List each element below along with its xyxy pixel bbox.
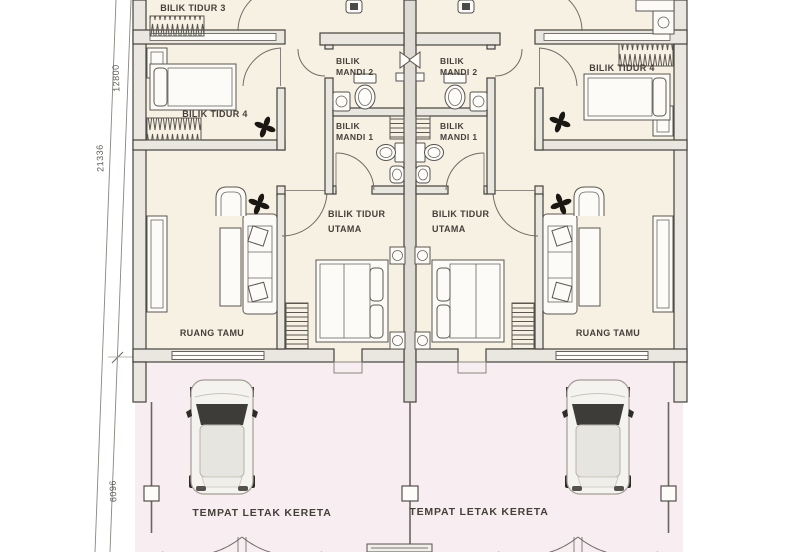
label-master-right-2: UTAMA [432, 224, 466, 234]
floor-plan-canvas: 12800 21336 6096 [0, 0, 800, 552]
wardrobe-icon [147, 118, 201, 140]
label-bath1-right-1: BILIK [440, 121, 464, 131]
bedroom3-nightstand [653, 11, 674, 34]
label-bath2-right-2: MANDI 2 [440, 67, 477, 77]
label-bath1-right-2: MANDI 1 [440, 132, 477, 142]
dimension-porch-depth: 6096 [108, 480, 119, 502]
toilet-seat-icon [350, 3, 358, 10]
master-pillow-1 [370, 268, 383, 301]
label-bedroom3-left: BILIK TIDUR 3 [160, 3, 226, 13]
stairs [286, 303, 308, 349]
sofa-pillow-2 [248, 282, 268, 302]
label-living-left: RUANG TAMU [180, 328, 244, 338]
label-bath2-left-1: BILIK [336, 56, 360, 66]
bath-bottom-wall-b [372, 186, 404, 194]
label-bedroom4-right: BILIK TIDUR 4 [589, 63, 655, 73]
label-living-right: RUANG TAMU [576, 328, 640, 338]
dimension-house-depth: 12800 [111, 64, 122, 92]
bath-left-wall [325, 78, 333, 194]
label-bath2-left-2: MANDI 2 [336, 67, 373, 77]
porch-wall-stub [133, 362, 146, 402]
label-carporch-left: TEMPAT LETAK KERETA [192, 507, 331, 519]
bath-top-wall [320, 33, 404, 45]
dimension-overall-depth: 21336 [95, 144, 106, 172]
floor-drain-icon [396, 73, 404, 81]
washer-icon [390, 116, 404, 139]
front-wall-b [362, 349, 404, 362]
bath-bottom-wall-a [333, 186, 336, 194]
label-master-left-1: BILIK TIDUR [328, 209, 385, 219]
living-master-wall [277, 194, 285, 349]
bedroom4-pillow [154, 68, 167, 106]
bedroom4-side-wall [277, 88, 285, 150]
side-fence-post [144, 486, 159, 501]
cabinet [147, 216, 167, 312]
side-outer-wall [133, 0, 146, 362]
armchair [216, 187, 246, 216]
master-pillow-2 [370, 305, 383, 338]
label-master-right-1: BILIK TIDUR [432, 209, 489, 219]
car [186, 380, 258, 494]
bedroom3-bed-edge [636, 0, 674, 11]
toilet2-bowl-icon [377, 145, 396, 161]
label-bath1-left-1: BILIK [336, 121, 360, 131]
label-carporch-right: TEMPAT LETAK KERETA [409, 506, 548, 518]
coffee-table [220, 228, 241, 306]
wardrobe-icon [150, 16, 204, 36]
label-bath2-right-1: BILIK [440, 56, 464, 66]
toilet2-tank-icon [395, 143, 404, 162]
sink-icon [333, 92, 350, 111]
center-fence-post [402, 486, 418, 501]
floor-plan-page: 12800 21336 6096 [0, 0, 800, 552]
bedroom4-wall [133, 140, 285, 150]
bath-left-wall-stub [325, 45, 333, 49]
bedroom4-pillow [653, 78, 666, 116]
label-master-left-2: UTAMA [328, 224, 362, 234]
label-bath1-left-2: MANDI 1 [336, 132, 373, 142]
label-bedroom4-left: BILIK TIDUR 4 [182, 109, 248, 119]
